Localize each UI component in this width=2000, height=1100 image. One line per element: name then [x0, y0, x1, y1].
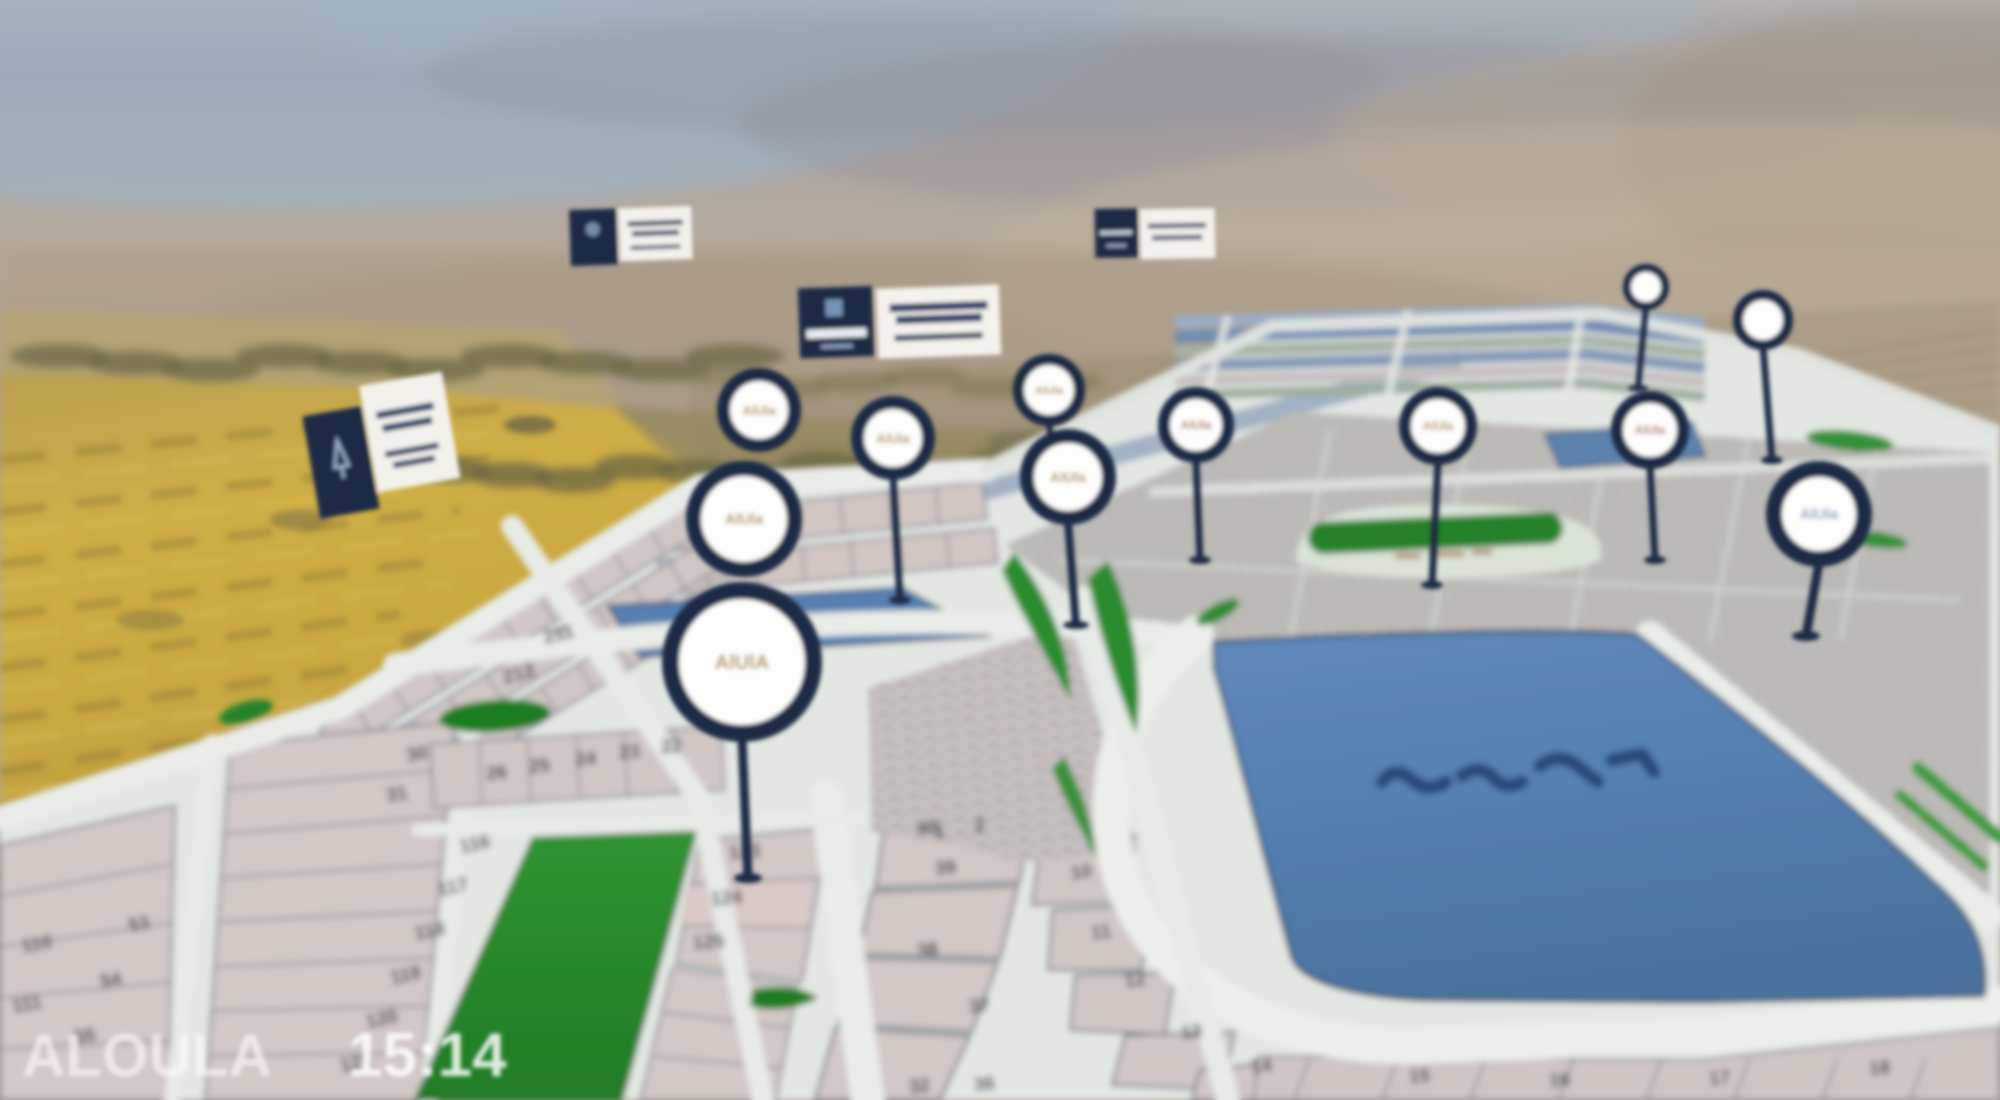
svg-text:31: 31: [385, 782, 410, 806]
svg-text:AlUla: AlUla: [1800, 506, 1839, 523]
svg-text:26: 26: [485, 762, 508, 784]
svg-text:14: 14: [1250, 1055, 1274, 1078]
svg-text:AlUlA: AlUlA: [715, 652, 769, 674]
svg-text:AlUla: AlUla: [725, 511, 764, 528]
svg-text:37: 37: [968, 995, 991, 1018]
svg-text:AlUla: AlUla: [1035, 385, 1064, 397]
svg-text:12: 12: [1123, 969, 1147, 993]
svg-text:ALOULA: ALOULA: [22, 1022, 272, 1089]
svg-text:18: 18: [1869, 1057, 1891, 1079]
svg-text:36: 36: [973, 1073, 996, 1096]
svg-text:1: 1: [934, 822, 946, 844]
svg-text:10: 10: [1069, 861, 1093, 885]
svg-text:30: 30: [405, 742, 429, 766]
svg-text:13: 13: [1180, 1021, 1203, 1044]
svg-text:53: 53: [127, 912, 151, 936]
svg-text:39: 39: [934, 857, 957, 880]
svg-text:AlUla: AlUla: [742, 403, 776, 418]
svg-text:22: 22: [660, 735, 683, 757]
svg-text:AlUla: AlUla: [1050, 469, 1086, 485]
svg-text:38: 38: [916, 939, 939, 962]
svg-text:25: 25: [528, 755, 551, 777]
svg-text:54: 54: [99, 968, 124, 992]
svg-text:AlUla: AlUla: [1635, 423, 1666, 437]
svg-text:124: 124: [710, 887, 744, 910]
svg-text:16: 16: [1549, 1069, 1571, 1091]
svg-text:24: 24: [574, 748, 597, 770]
svg-text:125: 125: [692, 931, 726, 954]
svg-text:11: 11: [1090, 921, 1113, 945]
svg-text:17: 17: [1709, 1067, 1731, 1089]
svg-text:2: 2: [974, 816, 986, 838]
svg-text:AlUla: AlUla: [1423, 419, 1454, 433]
svg-text:15: 15: [1409, 1065, 1432, 1087]
svg-text:AlUla: AlUla: [1181, 418, 1212, 432]
svg-text:23: 23: [618, 741, 641, 763]
svg-text:32: 32: [908, 1075, 931, 1098]
svg-text:AlUla: AlUla: [876, 431, 910, 446]
svg-text:15:14: 15:14: [348, 1021, 507, 1090]
